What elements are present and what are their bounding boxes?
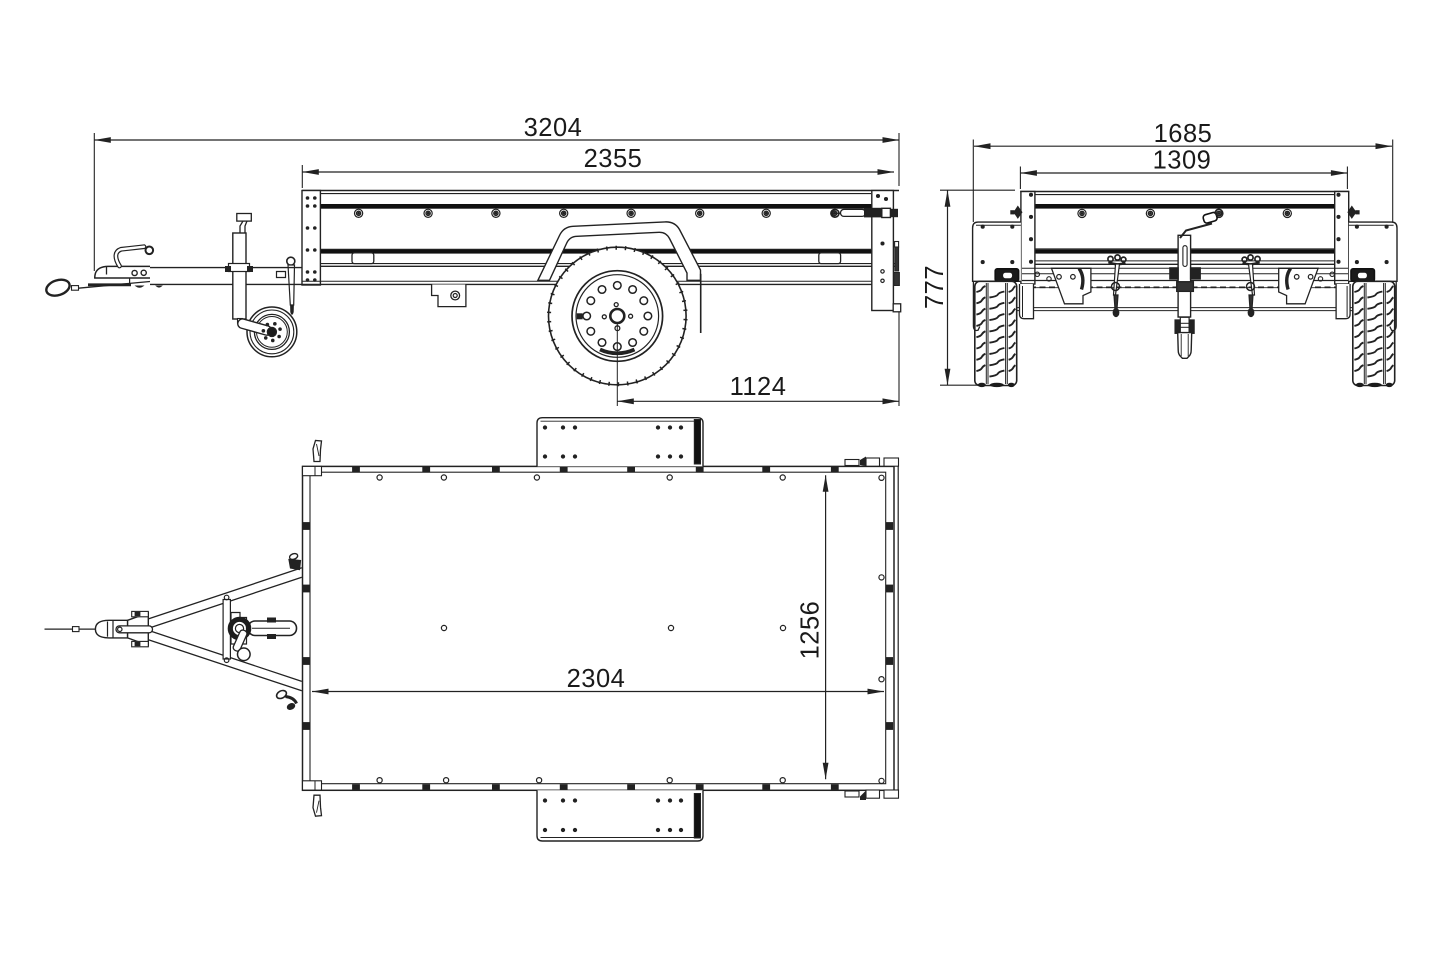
svg-text:2304: 2304 bbox=[567, 665, 626, 693]
svg-text:1124: 1124 bbox=[730, 373, 787, 401]
svg-text:777: 777 bbox=[921, 265, 949, 309]
svg-text:2355: 2355 bbox=[584, 145, 643, 173]
svg-text:1309: 1309 bbox=[1153, 147, 1212, 175]
svg-text:1256: 1256 bbox=[797, 601, 825, 660]
svg-text:3204: 3204 bbox=[524, 114, 583, 142]
svg-text:1685: 1685 bbox=[1154, 120, 1213, 148]
